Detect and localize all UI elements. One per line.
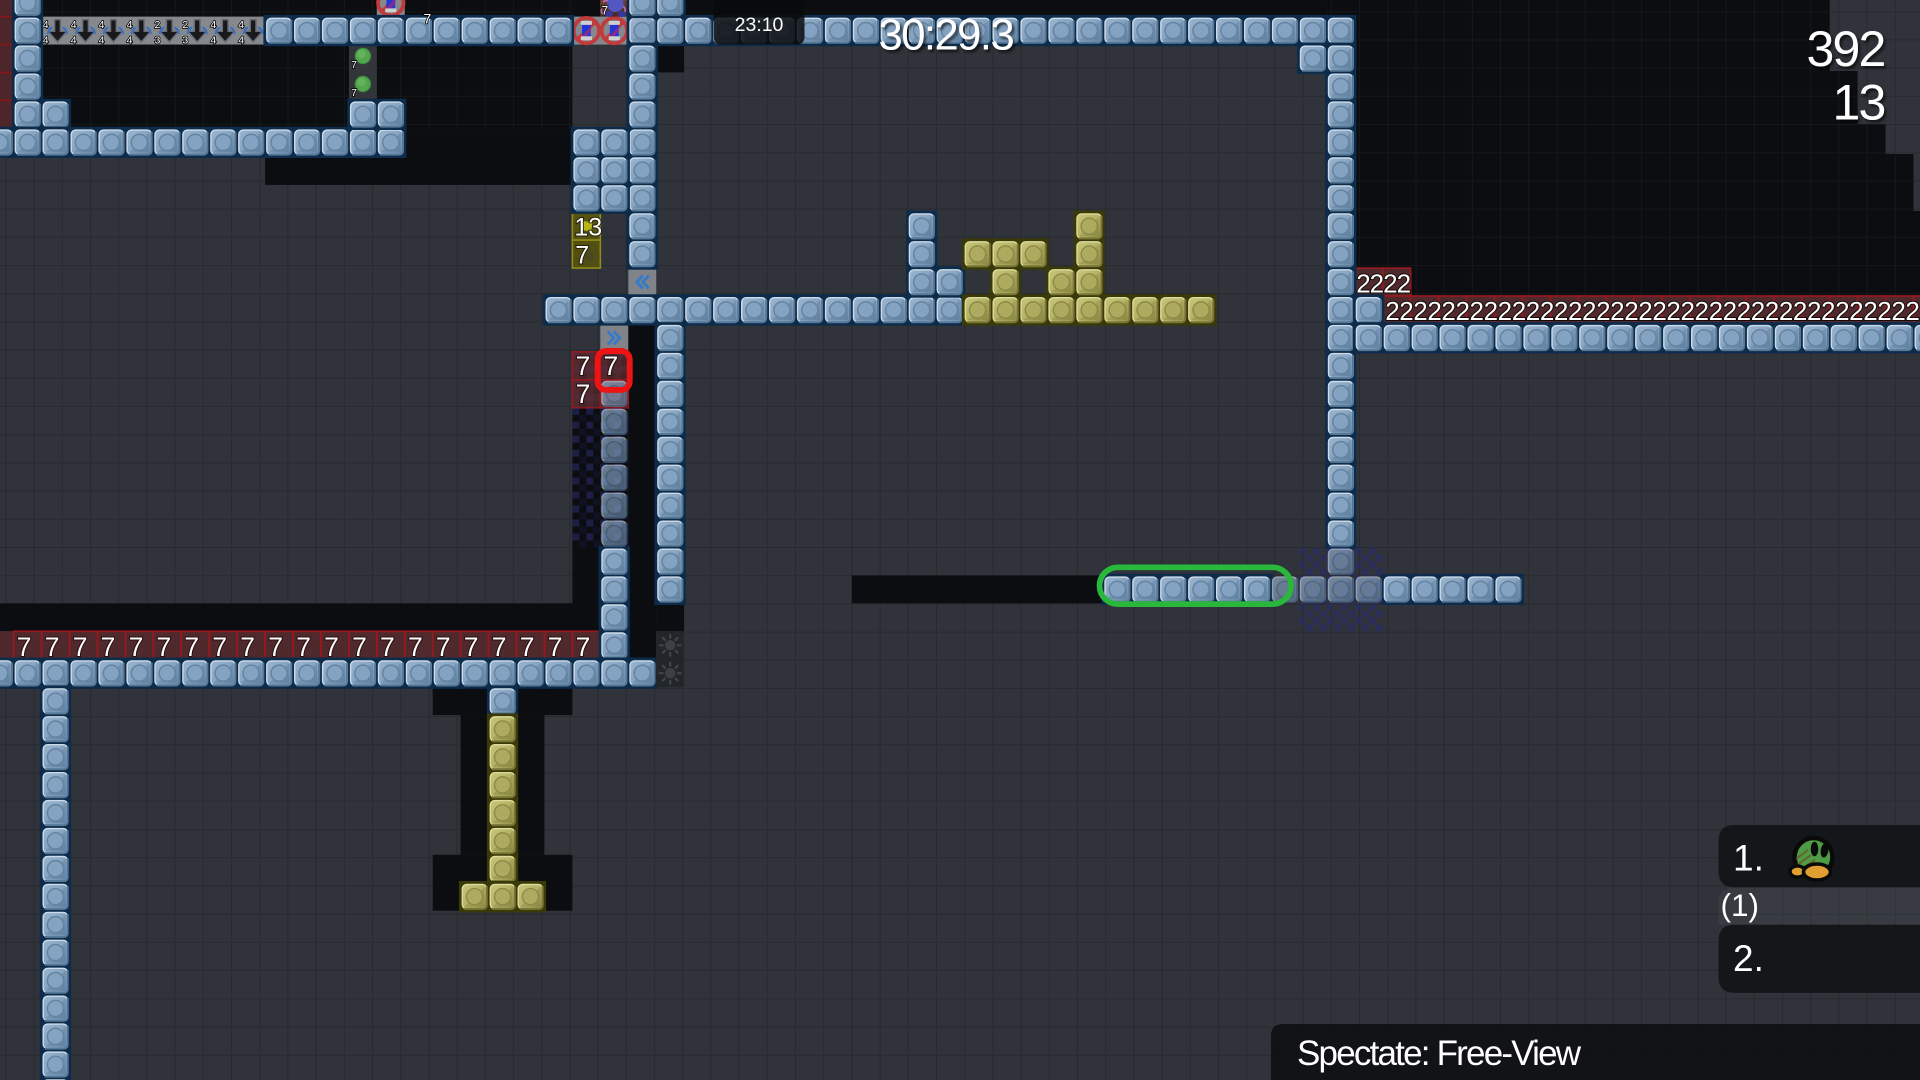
svg-text:7: 7	[575, 241, 589, 269]
svg-text:7: 7	[351, 87, 357, 99]
svg-text:7: 7	[240, 632, 255, 662]
svg-text:2: 2	[182, 19, 188, 31]
svg-text:7: 7	[352, 632, 367, 662]
svg-text:1.: 1.	[1733, 838, 1764, 879]
svg-text:13: 13	[574, 213, 602, 241]
svg-text:7: 7	[548, 632, 563, 662]
svg-text:4: 4	[43, 19, 49, 31]
svg-text:7: 7	[184, 632, 199, 662]
svg-text:3: 3	[182, 34, 188, 46]
svg-text:Spectate: Free-View: Spectate: Free-View	[1297, 1034, 1582, 1073]
svg-text:7: 7	[45, 632, 60, 662]
svg-text:2222: 2222	[1356, 268, 1410, 298]
svg-text:3: 3	[155, 34, 161, 46]
svg-text:7: 7	[212, 632, 227, 662]
svg-text:7: 7	[436, 632, 451, 662]
svg-text:392: 392	[1806, 21, 1884, 77]
svg-text:7: 7	[101, 632, 116, 662]
svg-text:13: 13	[1832, 75, 1884, 131]
svg-text:2.: 2.	[1733, 938, 1764, 979]
svg-text:7: 7	[351, 59, 357, 71]
svg-text:4: 4	[99, 34, 105, 46]
svg-text:30:29.3: 30:29.3	[879, 11, 1014, 59]
svg-text:(1): (1)	[1721, 887, 1760, 923]
svg-text:2: 2	[155, 19, 161, 31]
svg-text:4: 4	[99, 19, 105, 31]
svg-text:4: 4	[43, 34, 49, 46]
svg-text:7: 7	[408, 632, 423, 662]
svg-text:7: 7	[576, 379, 591, 409]
svg-text:7: 7	[157, 632, 172, 662]
svg-text:7: 7	[520, 632, 535, 662]
svg-text:7: 7	[73, 632, 88, 662]
svg-text:7: 7	[324, 632, 339, 662]
svg-text:222222222222222222222222222222: 2222222222222222222222222222222222222222	[1385, 296, 1920, 326]
svg-text:7: 7	[576, 632, 591, 662]
svg-text:7: 7	[129, 632, 144, 662]
svg-text:4: 4	[238, 19, 244, 31]
svg-text:4: 4	[238, 34, 244, 46]
svg-text:7: 7	[576, 351, 591, 381]
svg-text:4: 4	[210, 34, 216, 46]
svg-text:7: 7	[17, 632, 32, 662]
svg-text:4: 4	[71, 19, 77, 31]
svg-text:23:10: 23:10	[735, 14, 784, 36]
svg-text:7: 7	[296, 632, 311, 662]
svg-text:7: 7	[380, 632, 395, 662]
svg-text:4: 4	[127, 19, 133, 31]
svg-text:7: 7	[268, 632, 283, 662]
svg-text:7: 7	[602, 4, 609, 18]
svg-text:7: 7	[464, 632, 479, 662]
svg-text:4: 4	[127, 34, 133, 46]
svg-text:7: 7	[492, 632, 507, 662]
svg-text:7: 7	[604, 351, 619, 381]
svg-text:4: 4	[210, 19, 216, 31]
svg-text:7: 7	[424, 11, 432, 27]
svg-text:4: 4	[71, 34, 77, 46]
